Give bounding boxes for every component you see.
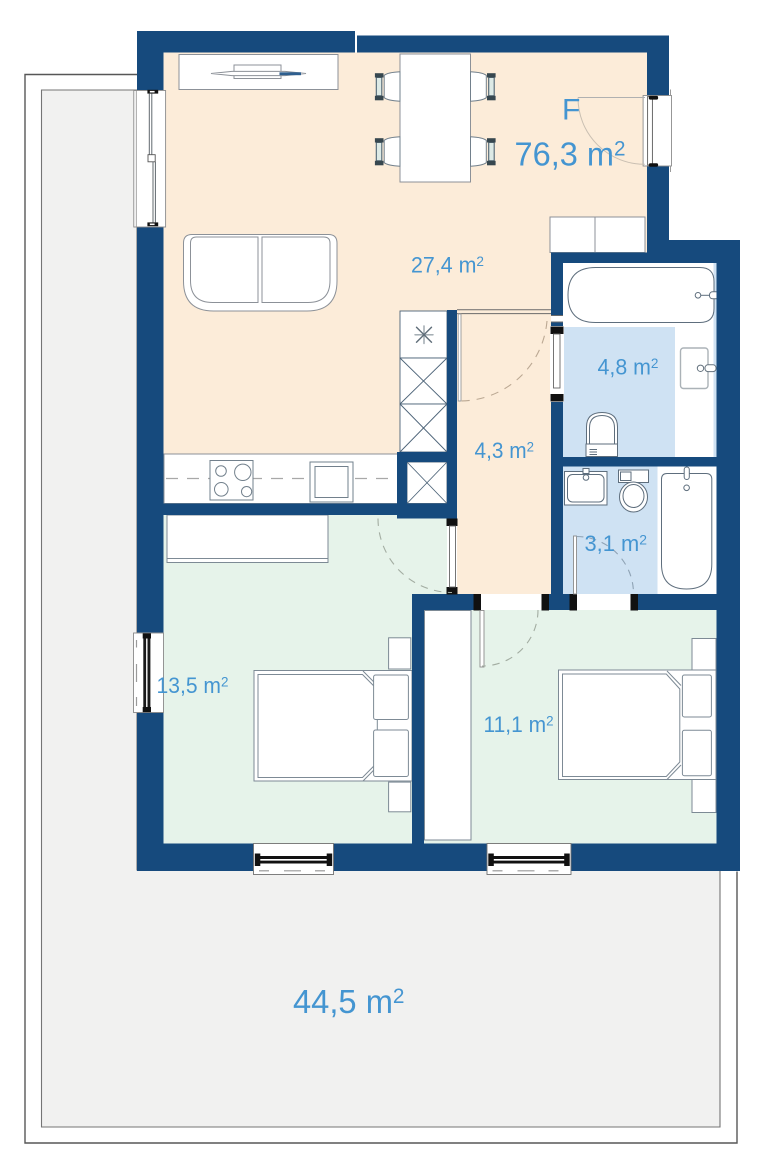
svg-text:11,1 m2: 11,1 m2 (484, 712, 554, 737)
svg-text:4,8 m2: 4,8 m2 (598, 355, 659, 380)
svg-text:F: F (562, 94, 580, 127)
svg-text:4,3 m2: 4,3 m2 (475, 438, 535, 463)
svg-text:3,1 m2: 3,1 m2 (585, 531, 648, 556)
svg-text:76,3 m2: 76,3 m2 (515, 136, 626, 173)
svg-text:27,4 m2: 27,4 m2 (411, 253, 484, 278)
svg-text:13,5 m2: 13,5 m2 (157, 673, 229, 698)
svg-text:44,5 m2: 44,5 m2 (293, 983, 405, 1020)
